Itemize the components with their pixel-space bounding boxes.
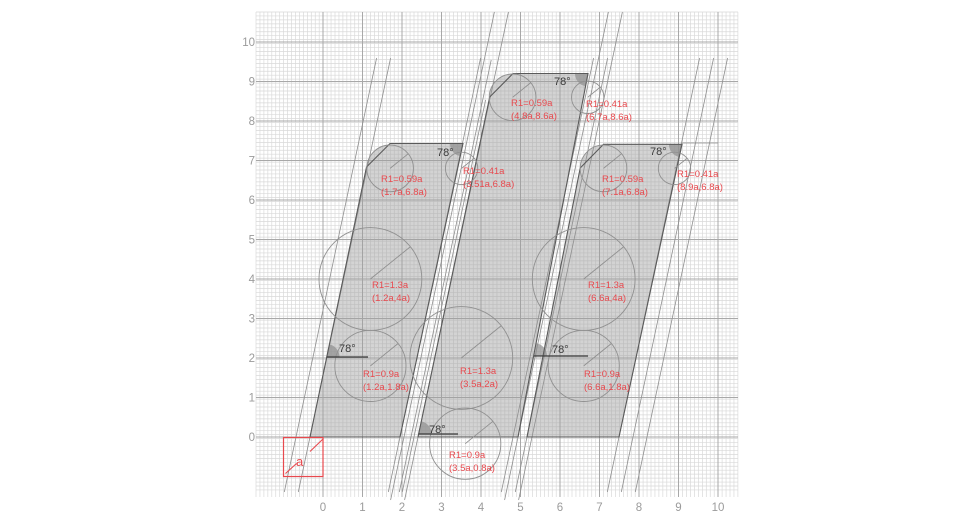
x-axis-tick-label: 9	[675, 502, 681, 514]
x-axis-tick-label: 3	[438, 502, 444, 514]
y-axis-tick-label: 5	[249, 235, 255, 247]
circle-center-label: (3.51a,6.8a)	[463, 179, 514, 190]
circle-radius-label: R1=0.9a	[584, 369, 621, 380]
y-axis-tick-label: 3	[249, 314, 255, 326]
angle-label: 78°	[339, 343, 356, 355]
x-axis-tick-label: 0	[320, 502, 326, 514]
angle-label: 78°	[429, 424, 446, 436]
construction-diagram-stage: 78°78°78°78°78°78°R1=0.9a(1.2a,1.8a)R1=1…	[0, 0, 980, 532]
x-axis-tick-label: 10	[712, 502, 725, 514]
circle-center-label: (6.7a,8.6a)	[586, 112, 632, 123]
y-axis-tick-label: 1	[249, 393, 255, 405]
y-axis-tick-label: 10	[242, 37, 255, 49]
x-axis-tick-label: 8	[636, 502, 642, 514]
angle-label: 78°	[552, 344, 569, 356]
circle-radius-label: R1=0.41a	[677, 169, 719, 180]
circle-center-label: (1.7a,6.8a)	[381, 187, 427, 198]
circle-radius-label: R1=0.59a	[602, 174, 644, 185]
circle-radius-label: R1=1.3a	[588, 280, 625, 291]
y-axis-tick-label: 8	[249, 116, 255, 128]
circle-radius-label: R1=1.3a	[460, 366, 497, 377]
circle-center-label: (6.6a,4a)	[588, 293, 626, 304]
circle-center-label: (6.6a,1.8a)	[584, 382, 630, 393]
x-axis-tick-label: 7	[596, 502, 602, 514]
unit-square-label: a	[296, 454, 304, 469]
glyph-construction-figure: 78°78°78°78°78°78°R1=0.9a(1.2a,1.8a)R1=1…	[0, 0, 980, 532]
x-axis-tick-label: 2	[399, 502, 405, 514]
circle-center-label: (3.5a,2a)	[460, 379, 498, 390]
x-axis-tick-label: 1	[359, 502, 365, 514]
y-axis-tick-label: 7	[249, 156, 255, 168]
circle-center-label: (3.5a,0.8a)	[449, 463, 495, 474]
x-axis-tick-label: 6	[557, 502, 563, 514]
circle-center-label: (1.2a,1.8a)	[363, 382, 409, 393]
angle-label: 78°	[650, 146, 667, 158]
y-axis-tick-label: 2	[249, 353, 255, 365]
circle-radius-label: R1=0.41a	[463, 166, 505, 177]
circle-radius-label: R1=1.3a	[372, 280, 409, 291]
circle-center-label: (7.1a,6.8a)	[602, 187, 648, 198]
circle-center-label: (8.9a,6.8a)	[677, 182, 723, 193]
circle-center-label: (1.2a,4a)	[372, 293, 410, 304]
x-axis-tick-label: 4	[478, 502, 485, 514]
angle-label: 78°	[554, 76, 571, 88]
circle-radius-label: R1=0.59a	[511, 98, 553, 109]
circle-radius-label: R1=0.9a	[363, 369, 400, 380]
y-axis-tick-label: 4	[249, 274, 256, 286]
circle-radius-label: R1=0.41a	[586, 99, 628, 110]
angle-label: 78°	[437, 147, 454, 159]
circle-center-label: (4.8a,8.6a)	[511, 111, 557, 122]
y-axis-tick-label: 9	[249, 77, 255, 89]
y-axis-tick-label: 0	[249, 432, 255, 444]
y-axis-tick-label: 6	[249, 195, 255, 207]
circle-radius-label: R1=0.59a	[381, 174, 423, 185]
x-axis-tick-label: 5	[517, 502, 523, 514]
circle-radius-label: R1=0.9a	[449, 450, 486, 461]
